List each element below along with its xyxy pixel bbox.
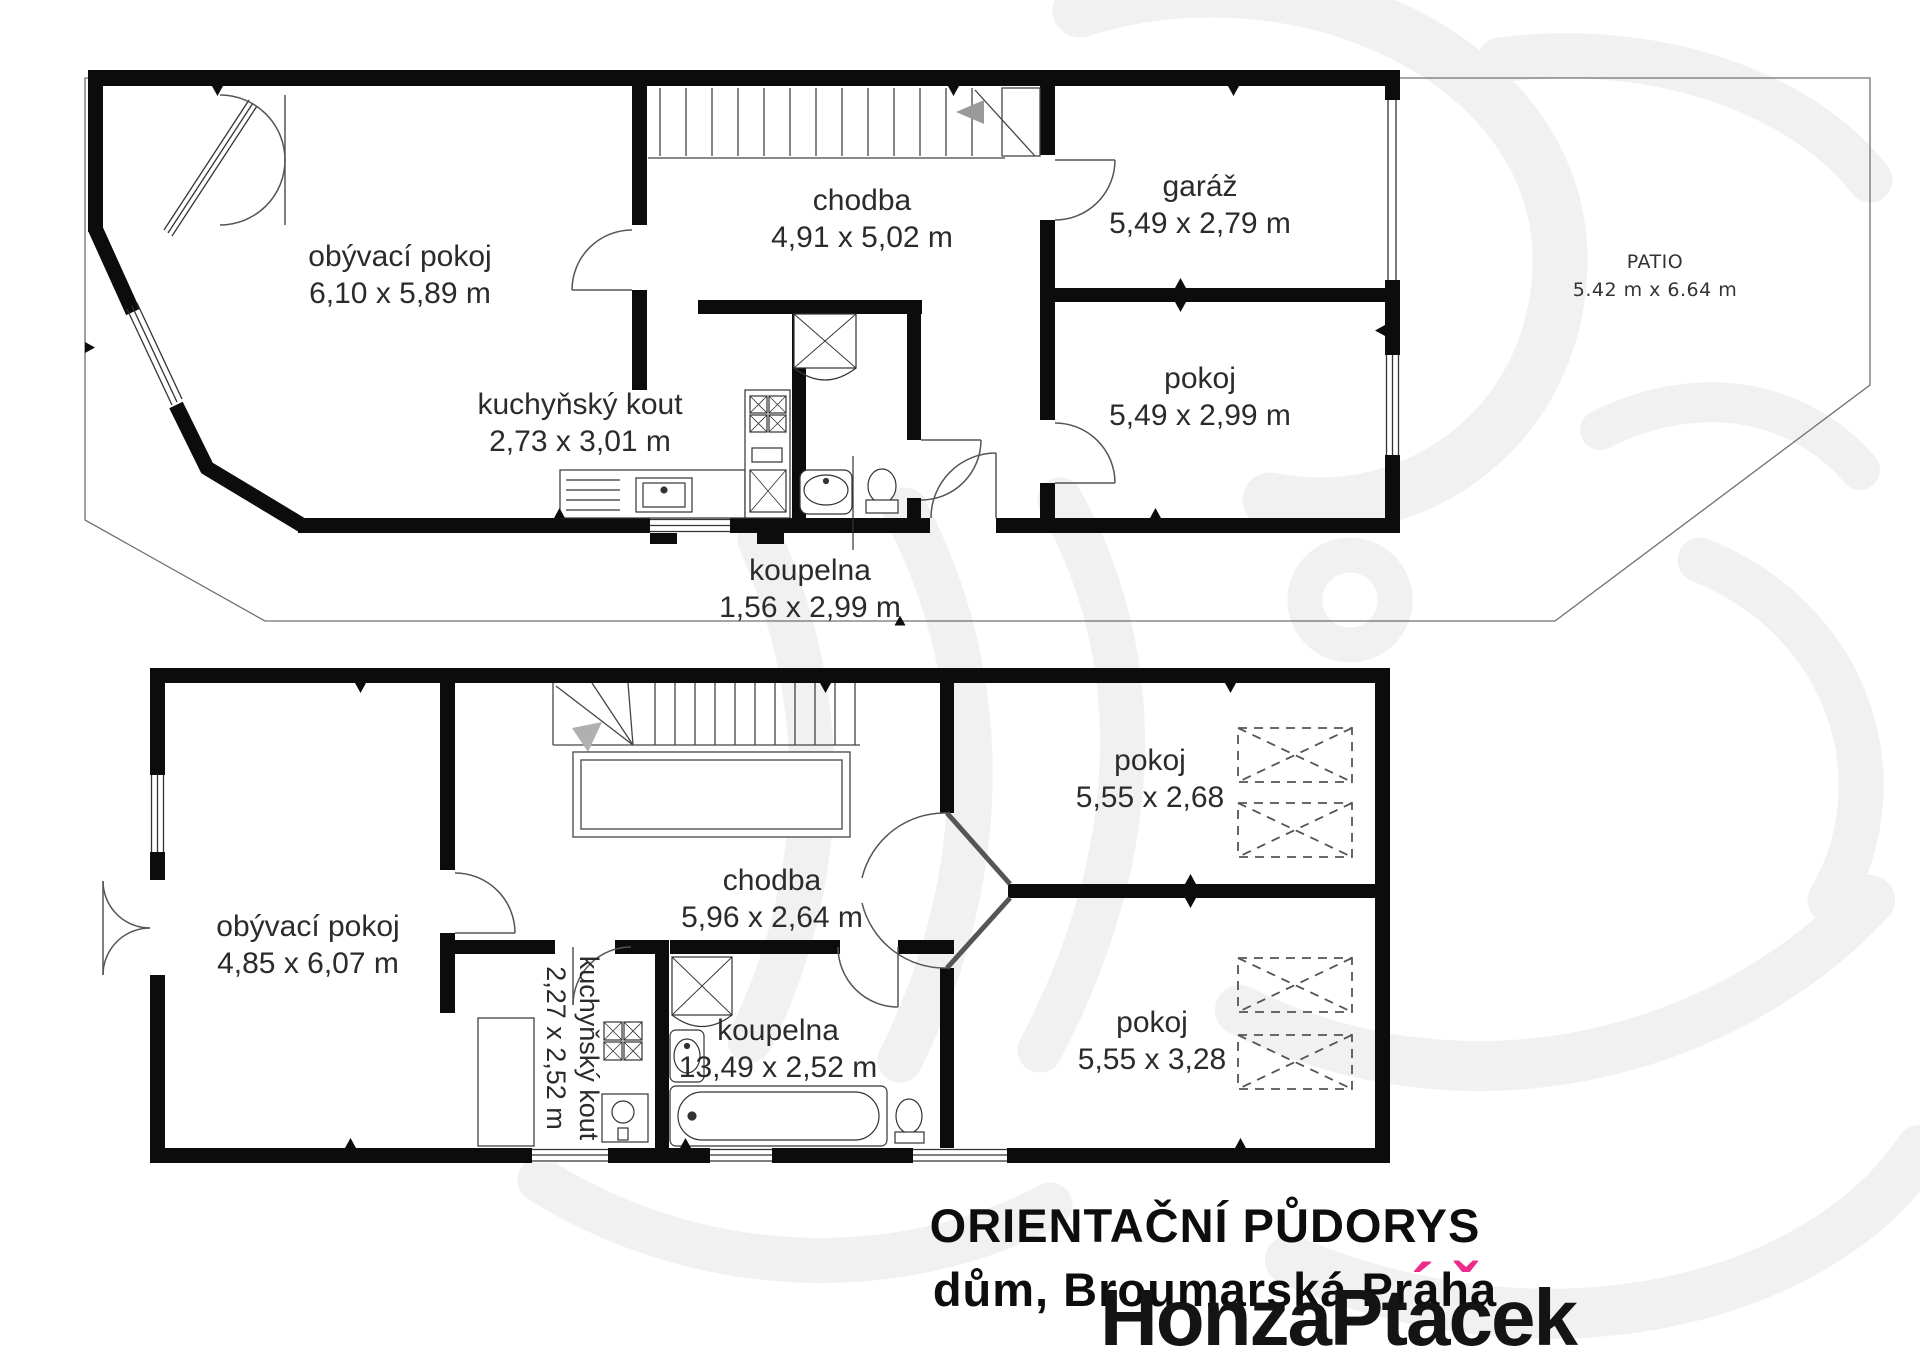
room-name: garáž: [1109, 168, 1291, 205]
room-dims: 5,96 x 2,64 m: [681, 899, 863, 936]
bathtub-icon: [670, 1086, 887, 1146]
room-name: koupelna: [719, 552, 901, 589]
bed-symbols: [1238, 728, 1352, 1089]
watermark-text-end: ek: [1491, 1273, 1576, 1357]
room-dims: 6,10 x 5,89 m: [308, 275, 491, 312]
toilet-icon: [895, 1099, 924, 1143]
floor-plan-drawing: [0, 0, 1920, 1357]
room-label-koupelna: koupelna 1,56 x 2,99 m: [719, 552, 901, 626]
bathroom-fixtures-top: [794, 314, 898, 514]
room-name: chodba: [771, 182, 953, 219]
room-dims: 1,56 x 2,99 m: [719, 589, 901, 626]
property-boundary: [85, 78, 1870, 621]
watermark-letter-c: cˇ: [1449, 1272, 1492, 1357]
room-label-garaz: garáž 5,49 x 2,79 m: [1109, 168, 1291, 242]
room-name: PATIO: [1573, 248, 1738, 276]
brand-watermark: HonzaPta´cˇek: [1100, 1272, 1576, 1357]
room-dims: 13,49 x 2,52 m: [679, 1049, 877, 1086]
floor-plan-top-linework: [85, 70, 1870, 626]
kitchen-cabinet: [478, 1018, 534, 1146]
room-label-chodba: chodba 5,96 x 2,64 m: [681, 862, 863, 936]
staircase-top-plan: [648, 88, 1040, 158]
room-dims: 4,91 x 5,02 m: [771, 219, 953, 256]
stairwell-void: [573, 752, 850, 837]
stair-direction-arrow: [572, 722, 602, 752]
room-label-pokoj: pokoj 5,49 x 2,99 m: [1109, 360, 1291, 434]
room-name: pokoj: [1076, 742, 1224, 779]
room-label-obyvaci-pokoj: obývací pokoj 6,10 x 5,89 m: [308, 238, 491, 312]
room-name: obývací pokoj: [308, 238, 491, 275]
room-dims: 5,49 x 2,79 m: [1109, 205, 1291, 242]
room-label-pokoj-1: pokoj 5,55 x 2,68: [1076, 742, 1224, 816]
stair-direction-arrow: [956, 100, 984, 124]
room-dims: 5,55 x 2,68: [1076, 779, 1224, 816]
room-label-kuchynsky-kout-vertical: kuchyňský kout 2,27 x 2,52 m: [539, 956, 605, 1141]
room-label-chodba: chodba 4,91 x 5,02 m: [771, 182, 953, 256]
room-label-patio: PATIO 5.42 m x 6.64 m: [1573, 248, 1738, 304]
bed-icon: [1238, 803, 1352, 857]
pink-caron-accent: ˇ: [1454, 1249, 1475, 1327]
room-dims: 2,73 x 3,01 m: [477, 423, 682, 460]
room-name: chodba: [681, 862, 863, 899]
room-dims: 5.42 m x 6.64 m: [1573, 276, 1738, 304]
watermark-text: HonzaPt: [1100, 1273, 1406, 1357]
bed-icon: [1238, 728, 1352, 782]
watermark-letter-a: a´: [1406, 1272, 1449, 1357]
room-name: koupelna: [679, 1012, 877, 1049]
room-name: pokoj: [1078, 1004, 1226, 1041]
room-label-pokoj-2: pokoj 5,55 x 3,28: [1078, 1004, 1226, 1078]
room-name: kuchyňský kout: [477, 386, 682, 423]
pink-acute-accent: ´: [1411, 1249, 1432, 1327]
room-label-kuchynsky-kout: kuchyňský kout 2,73 x 3,01 m: [477, 386, 682, 460]
room-label-koupelna: koupelna 13,49 x 2,52 m: [679, 1012, 877, 1086]
page-title: ORIENTAČNÍ PŮDORYS: [930, 1198, 1481, 1253]
room-dims: 5,49 x 2,99 m: [1109, 397, 1291, 434]
floor-plan-page: obývací pokoj 6,10 x 5,89 m kuchyňský ko…: [0, 0, 1920, 1357]
room-dims: 4,85 x 6,07 m: [216, 945, 399, 982]
room-dims: 5,55 x 3,28: [1078, 1041, 1226, 1078]
stove-icon: [604, 1022, 642, 1060]
room-name: kuchyňský kout: [572, 956, 605, 1141]
bay-walls: [95, 228, 305, 527]
room-name: obývací pokoj: [216, 908, 399, 945]
room-name: pokoj: [1109, 360, 1291, 397]
room-dims: 2,27 x 2,52 m: [539, 956, 572, 1141]
toilet-icon: [866, 469, 898, 513]
room-label-obyvaci-pokoj: obývací pokoj 4,85 x 6,07 m: [216, 908, 399, 982]
